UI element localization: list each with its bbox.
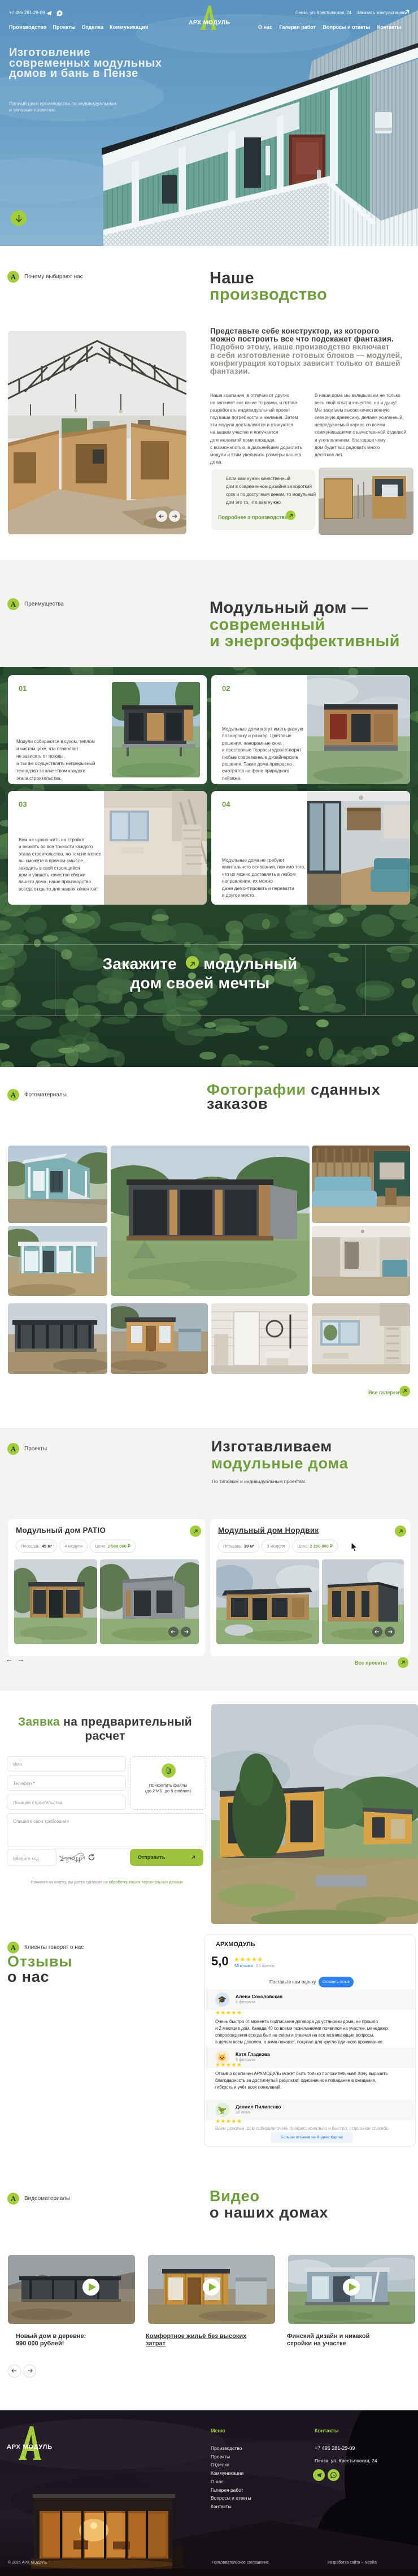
svg-text:2: 2 xyxy=(60,1854,64,1862)
